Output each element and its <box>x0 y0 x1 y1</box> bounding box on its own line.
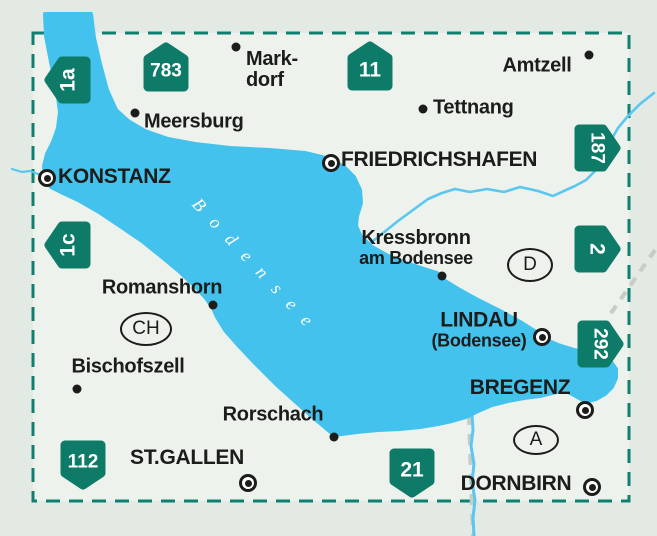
place-label-line: BREGENZ <box>470 377 571 399</box>
map-sheet-badge-1c: 1c <box>42 218 94 272</box>
map-sheet-badge-187: 187 <box>571 121 623 175</box>
place-label-markdorf: Mark-dorf <box>246 49 298 91</box>
country-mark-ch: CH <box>120 312 172 346</box>
badge-number: 1c <box>57 233 80 257</box>
place-dot-bregenz <box>576 401 594 419</box>
place-dot-dornbirn <box>583 478 601 496</box>
place-label-line: Romanshorn <box>102 278 222 299</box>
map-sheet-badge-21: 21 <box>386 446 438 500</box>
place-label-amtzell: Amtzell <box>502 56 571 77</box>
place-dot-friedrichshafen <box>322 154 340 172</box>
place-label-line: Rorschach <box>223 405 324 426</box>
dot-core <box>245 480 252 487</box>
badge-number: 2 <box>586 243 609 255</box>
place-label-st-gallen: ST.GALLEN <box>130 447 244 469</box>
place-label-line: DORNBIRN <box>461 473 572 495</box>
map-sheet-badge-11: 11 <box>344 39 396 93</box>
dot-ring <box>536 331 548 343</box>
place-dot-bischofszell <box>73 385 82 394</box>
dot-core <box>539 334 546 341</box>
dot-core <box>589 484 596 491</box>
place-label-line: dorf <box>246 70 298 91</box>
dot-core <box>328 160 335 167</box>
dot-ring <box>242 477 254 489</box>
badge-number: 11 <box>359 59 382 82</box>
dot-core <box>582 407 589 414</box>
place-dot-markdorf <box>232 43 241 52</box>
dot-ring <box>41 172 53 184</box>
lake-label: Bodensee <box>188 194 327 341</box>
place-label-lindau: LINDAU(Bodensee) <box>431 310 526 351</box>
country-mark-d: D <box>507 248 553 282</box>
map-sheet-badge-783: 783 <box>140 40 192 94</box>
place-label-line: am Bodensee <box>359 249 473 268</box>
place-dot-kressbronn <box>438 272 447 281</box>
place-dot-romanshorn <box>209 301 218 310</box>
place-label-romanshorn: Romanshorn <box>102 278 222 299</box>
place-label-line: Amtzell <box>502 56 571 77</box>
place-dot-amtzell <box>585 51 594 60</box>
place-label-rorschach: Rorschach <box>223 405 324 426</box>
place-label-meersburg: Meersburg <box>144 112 244 133</box>
map-sheet-badge-112: 112 <box>57 438 109 492</box>
badge-number: 187 <box>587 132 608 164</box>
place-label-tettnang: Tettnang <box>433 98 514 119</box>
place-label-dornbirn: DORNBIRN <box>461 473 572 495</box>
place-label-line: Mark- <box>246 49 298 70</box>
place-label-konstanz: KONSTANZ <box>58 166 171 188</box>
dot-core <box>44 175 51 182</box>
place-label-line: Bischofszell <box>71 357 184 378</box>
place-label-bischofszell: Bischofszell <box>71 357 184 378</box>
place-dot-konstanz <box>38 169 56 187</box>
map-sheet-badge-2: 2 <box>571 222 623 276</box>
dot-ring <box>325 157 337 169</box>
place-label-kressbronn: Kressbronnam Bodensee <box>359 228 473 268</box>
place-label-line: Tettnang <box>433 98 514 119</box>
place-dot-meersburg <box>131 109 140 118</box>
badge-number: 21 <box>400 459 424 482</box>
badge-number: 783 <box>150 61 182 82</box>
place-label-bregenz: BREGENZ <box>470 377 571 399</box>
dot-ring <box>586 481 598 493</box>
country-mark-a: A <box>513 425 559 455</box>
place-dot-st-gallen <box>239 474 257 492</box>
place-label-line: (Bodensee) <box>431 332 526 351</box>
badge-number: 112 <box>68 452 99 473</box>
place-label-friedrichshafen: FRIEDRICHSHAFEN <box>341 149 537 171</box>
place-dot-tettnang <box>419 105 428 114</box>
place-label-line: LINDAU <box>431 310 526 332</box>
place-dot-rorschach <box>330 433 339 442</box>
badge-number: 1a <box>57 68 80 92</box>
map-sheet-badge-1a: 1a <box>42 53 94 107</box>
place-label-line: ST.GALLEN <box>130 447 244 469</box>
place-dot-lindau <box>533 328 551 346</box>
place-label-line: FRIEDRICHSHAFEN <box>341 149 537 171</box>
map-sheet-badge-292: 292 <box>574 317 626 371</box>
place-label-line: KONSTANZ <box>58 166 171 188</box>
labels-layer: Bodensee KONSTANZFRIEDRICHSHAFENLINDAU(B… <box>0 0 657 536</box>
place-label-line: Kressbronn <box>359 228 473 249</box>
place-label-line: Meersburg <box>144 112 244 133</box>
dot-ring <box>579 404 591 416</box>
badge-number: 292 <box>590 328 611 360</box>
bodensee-map: Bodensee KONSTANZFRIEDRICHSHAFENLINDAU(B… <box>0 0 657 536</box>
